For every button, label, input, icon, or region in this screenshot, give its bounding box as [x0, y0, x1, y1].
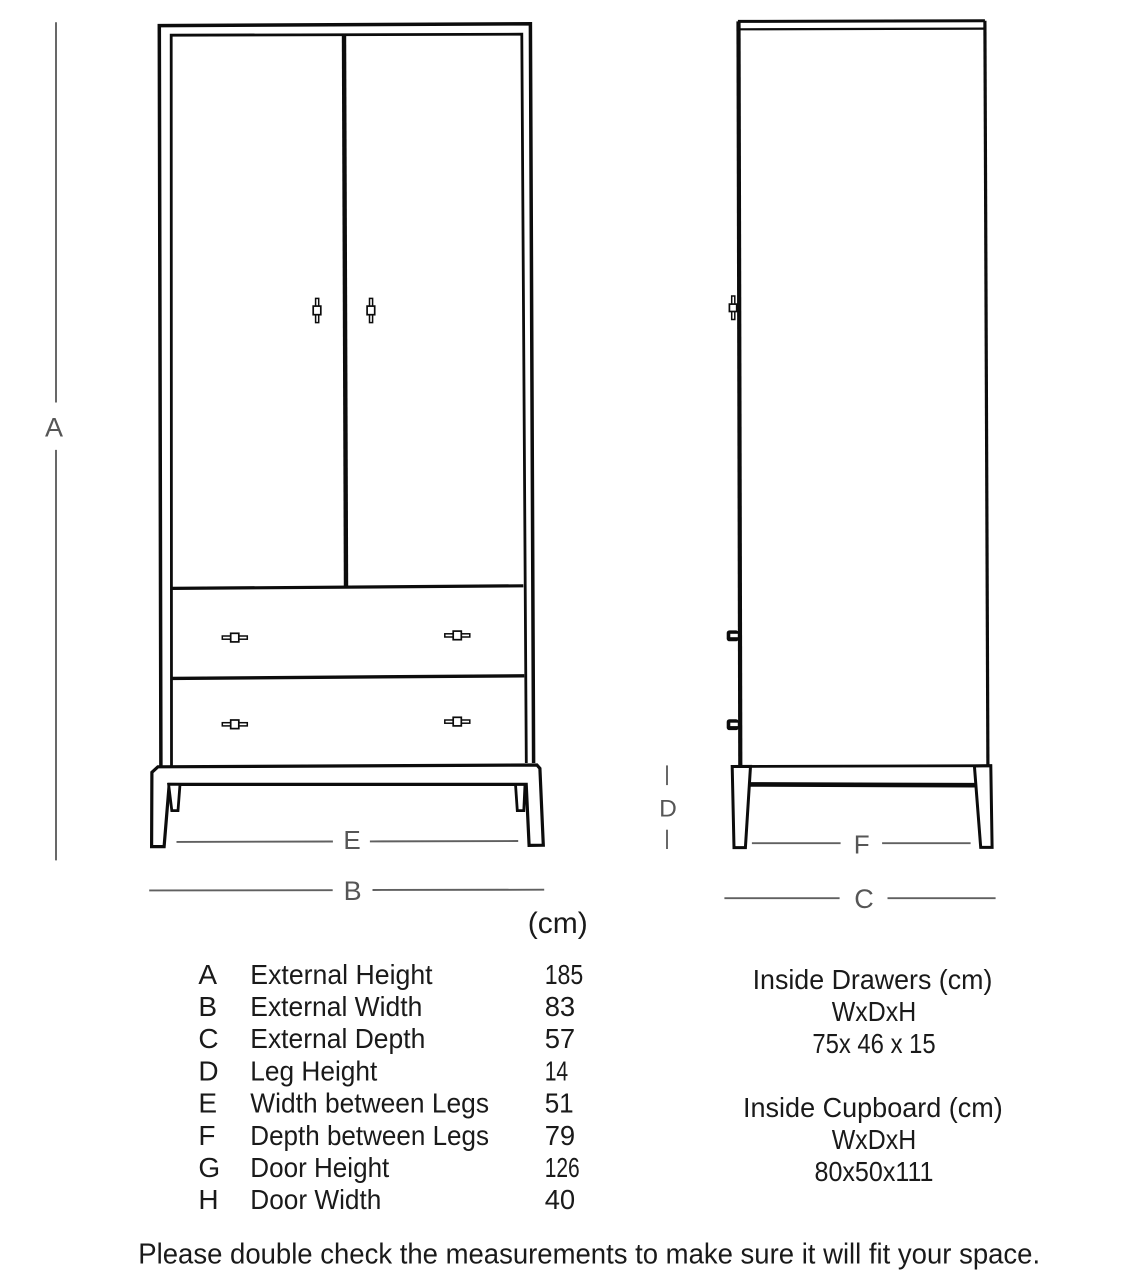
- svg-text:B: B: [198, 991, 217, 1022]
- svg-text:Leg Height: Leg Height: [250, 1055, 377, 1086]
- svg-text:Width between Legs: Width between Legs: [250, 1088, 489, 1119]
- svg-text:H: H: [198, 1184, 218, 1215]
- svg-text:Inside Cupboard (cm): Inside Cupboard (cm): [743, 1092, 1003, 1123]
- svg-text:40: 40: [545, 1184, 576, 1215]
- svg-text:D: D: [198, 1055, 218, 1086]
- svg-text:57: 57: [545, 1023, 576, 1054]
- svg-text:WxDxH: WxDxH: [832, 996, 916, 1027]
- svg-text:79: 79: [545, 1120, 576, 1151]
- svg-text:A: A: [45, 412, 63, 442]
- svg-text:A: A: [198, 959, 217, 990]
- svg-text:B: B: [344, 876, 362, 906]
- svg-text:80x50x111: 80x50x111: [815, 1156, 934, 1187]
- svg-text:E: E: [343, 825, 360, 855]
- svg-text:Door Width: Door Width: [250, 1184, 381, 1215]
- svg-text:D: D: [659, 796, 677, 823]
- svg-text:G: G: [198, 1152, 220, 1183]
- svg-text:Depth between Legs: Depth between Legs: [250, 1120, 489, 1151]
- svg-text:External Depth: External Depth: [250, 1023, 425, 1054]
- svg-text:External Height: External Height: [250, 959, 433, 990]
- svg-text:(cm): (cm): [528, 907, 588, 940]
- svg-text:14: 14: [545, 1055, 569, 1086]
- svg-text:83: 83: [545, 991, 576, 1022]
- svg-text:51: 51: [545, 1088, 574, 1119]
- svg-text:185: 185: [545, 959, 584, 990]
- svg-text:126: 126: [545, 1152, 580, 1183]
- svg-text:C: C: [854, 884, 874, 914]
- svg-text:Inside Drawers (cm): Inside Drawers (cm): [753, 964, 993, 995]
- svg-text:E: E: [198, 1088, 217, 1119]
- svg-text:Please double check the measur: Please double check the measurements to …: [138, 1238, 1040, 1270]
- svg-text:F: F: [854, 830, 870, 860]
- svg-text:F: F: [198, 1120, 215, 1151]
- svg-text:75x 46 x 15: 75x 46 x 15: [812, 1028, 935, 1059]
- svg-text:C: C: [198, 1023, 218, 1054]
- svg-text:WxDxH: WxDxH: [832, 1124, 916, 1155]
- svg-text:External Width: External Width: [250, 991, 422, 1022]
- svg-text:Door Height: Door Height: [250, 1152, 389, 1183]
